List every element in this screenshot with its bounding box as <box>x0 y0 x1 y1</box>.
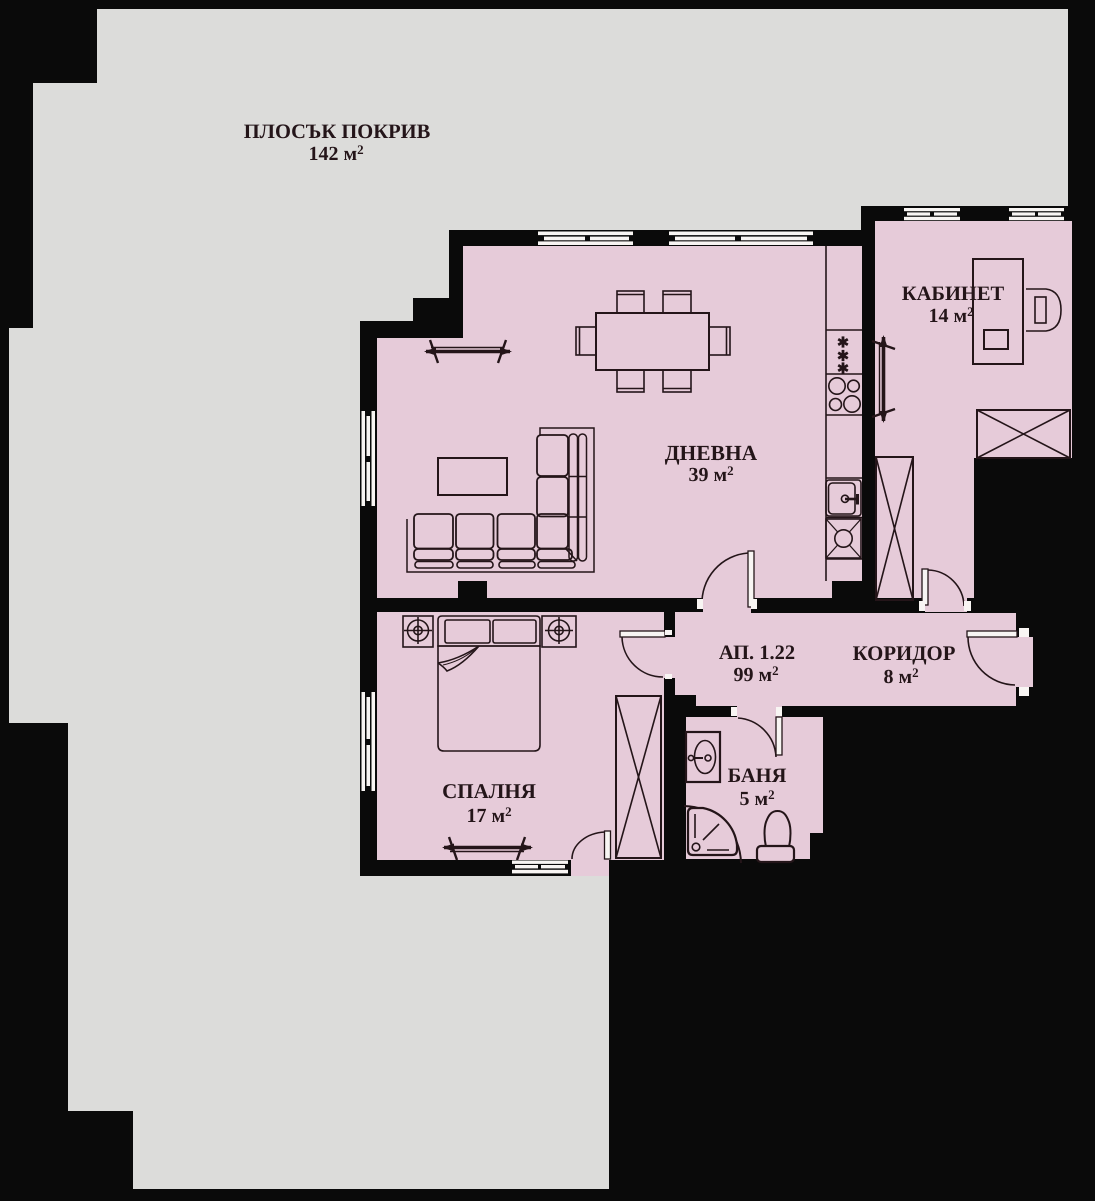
svg-text:СПАЛНЯ: СПАЛНЯ <box>442 779 536 803</box>
svg-text:АП. 1.22: АП. 1.22 <box>719 642 795 664</box>
svg-text:КОРИДОР: КОРИДОР <box>853 642 956 665</box>
svg-text:17 м2: 17 м2 <box>466 804 511 827</box>
svg-text:39 м2: 39 м2 <box>688 463 733 486</box>
svg-text:БАНЯ: БАНЯ <box>728 765 787 787</box>
svg-text:142 м2: 142 м2 <box>308 142 363 165</box>
svg-text:14 м2: 14 м2 <box>928 304 973 327</box>
svg-text:ДНЕВНА: ДНЕВНА <box>665 441 758 465</box>
svg-text:ПЛОСЪК ПОКРИВ: ПЛОСЪК ПОКРИВ <box>244 121 431 143</box>
svg-text:99 м2: 99 м2 <box>733 663 778 686</box>
svg-text:КАБИНЕТ: КАБИНЕТ <box>902 283 1005 305</box>
